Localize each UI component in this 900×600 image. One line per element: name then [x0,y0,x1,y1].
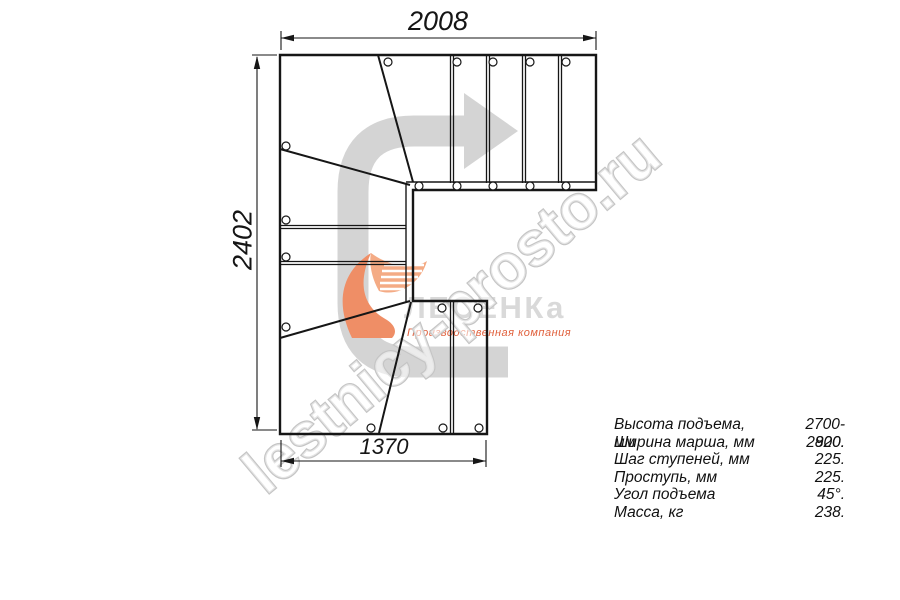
spec-row: Высота подъема, мм 2700-2820. [614,416,845,434]
stair-drawing-canvas: ЛЕСЕНКа Производственная компания lestni… [0,0,900,600]
spec-row: Шаг ступеней, мм 225. [614,451,845,469]
dimension-top-label: 2008 [408,6,468,37]
spec-value: 225. [815,451,845,469]
spec-label: Масса, кг [614,504,683,522]
spec-value: 900. [815,434,845,452]
spec-label: Угол подъема [614,486,715,504]
spec-label: Шаг ступеней, мм [614,451,750,469]
spec-value: 45°. [817,486,845,504]
spec-value: 238. [815,504,845,522]
spec-row: Проступь, мм 225. [614,469,845,487]
dimension-left-label: 2402 [228,210,259,270]
dimension-bottom-label: 1370 [360,434,409,460]
spec-value: 2700-2820. [768,416,845,434]
spec-label: Ширина марша, мм [614,434,755,452]
watermark-text: lestnicy-prosto.ru [230,119,673,507]
spec-label: Высота подъема, мм [614,416,768,434]
spec-row: Масса, кг 238. [614,504,845,522]
spec-row: Угол подъема 45°. [614,486,845,504]
spec-value: 225. [815,469,845,487]
specs-table: Высота подъема, мм 2700-2820. Ширина мар… [614,416,845,522]
spec-label: Проступь, мм [614,469,717,487]
